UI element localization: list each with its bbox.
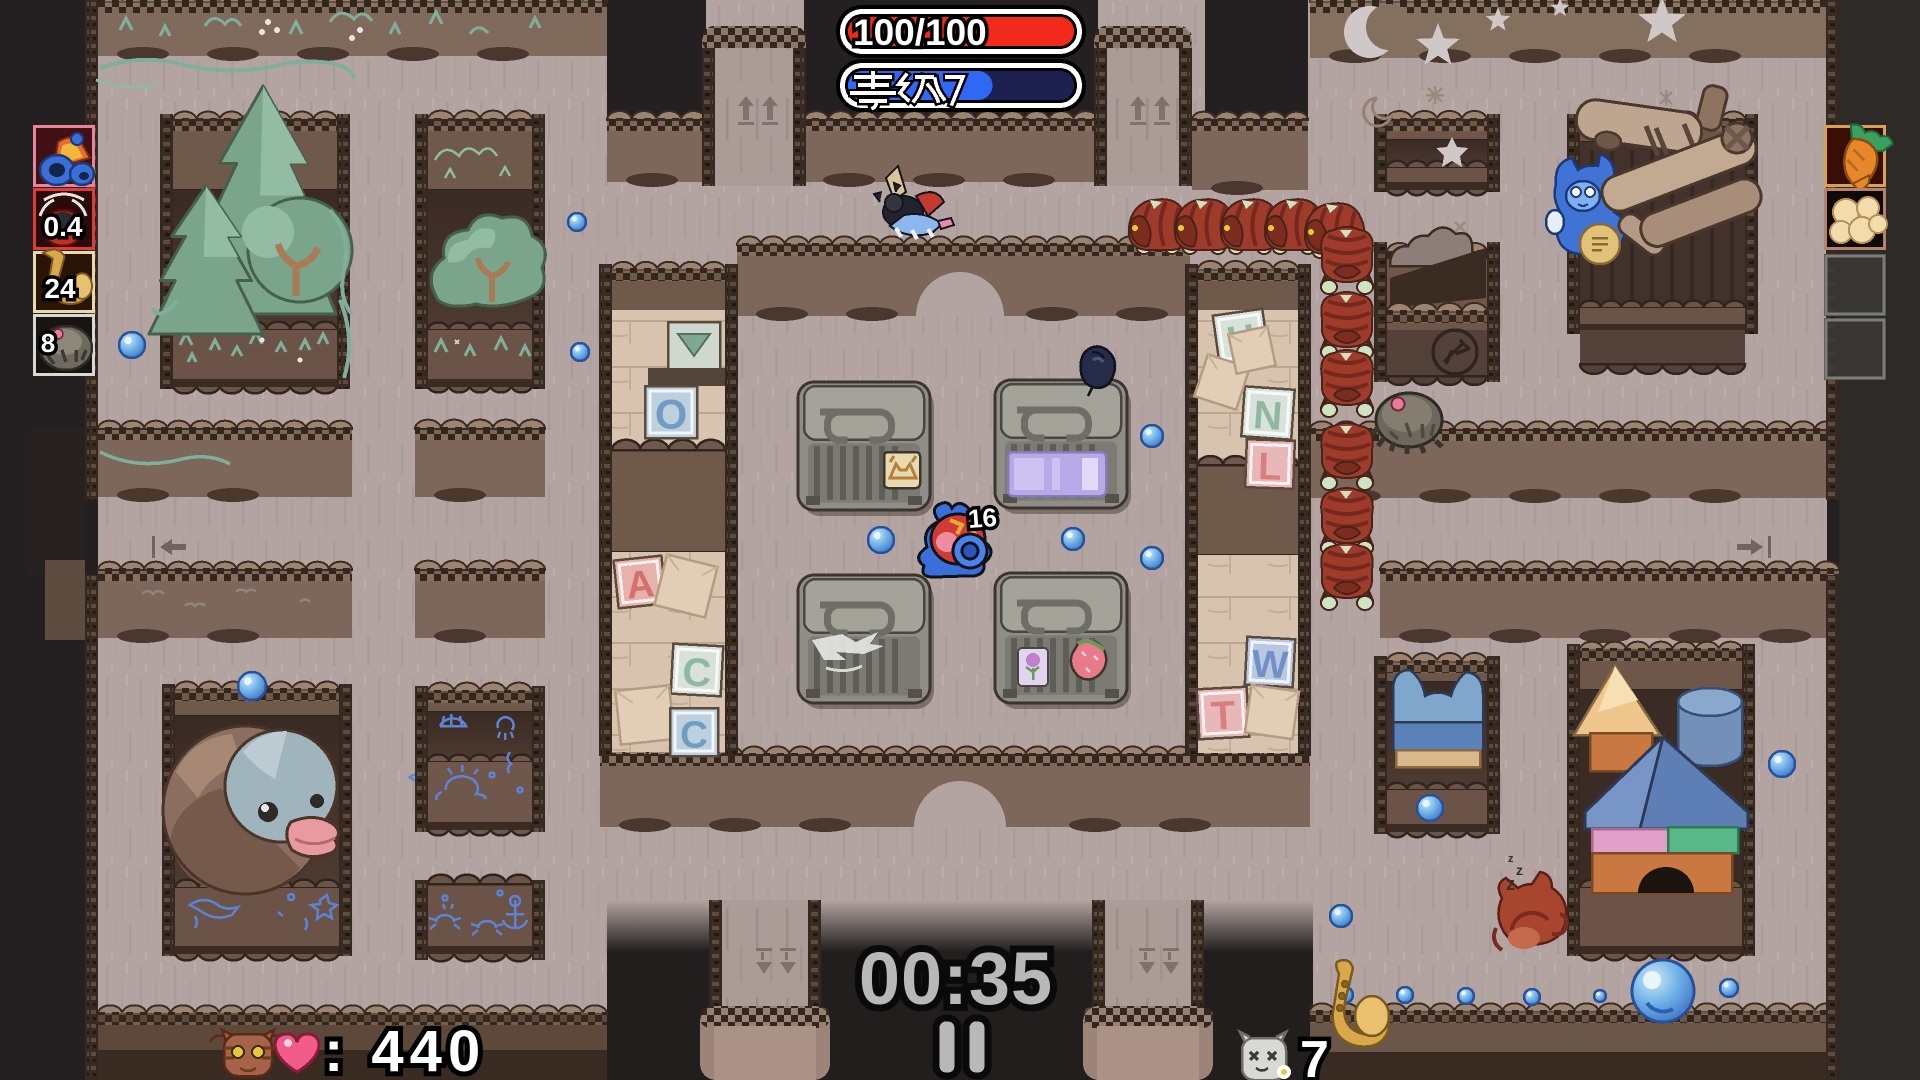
svg-text:0.4: 0.4	[44, 211, 83, 242]
svg-text:24: 24	[44, 273, 76, 304]
svg-text:: 440: : 440	[324, 1019, 486, 1080]
svg-text:16: 16	[967, 502, 998, 534]
svg-text:100/100: 100/100	[853, 12, 987, 53]
svg-text:N: N	[1252, 393, 1284, 439]
svg-text:z: z	[1506, 874, 1515, 894]
svg-text:8: 8	[41, 328, 55, 358]
svg-text:00:35: 00:35	[859, 937, 1053, 1020]
svg-text:C: C	[681, 650, 712, 695]
svg-text:z: z	[1508, 853, 1514, 865]
svg-text:O: O	[655, 391, 687, 438]
svg-text:A: A	[624, 562, 656, 608]
svg-text:7: 7	[1300, 1031, 1329, 1080]
svg-text:W: W	[1251, 642, 1290, 687]
svg-text:C: C	[680, 713, 708, 756]
svg-text:L: L	[1257, 445, 1282, 489]
svg-text:T: T	[1210, 693, 1237, 738]
svg-text:z: z	[1516, 862, 1523, 878]
